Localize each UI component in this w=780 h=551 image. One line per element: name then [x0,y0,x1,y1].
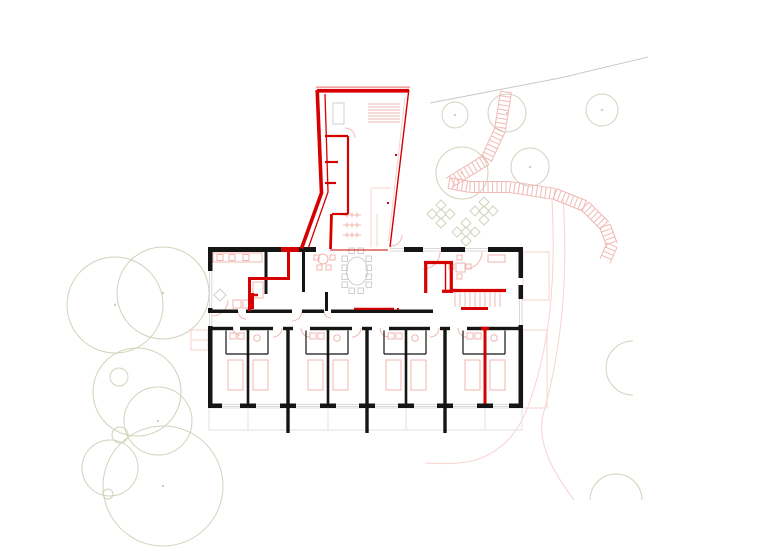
wall [209,327,233,330]
path-rung [603,233,613,237]
drawing-sheet [0,0,780,551]
furniture-symbol [342,256,348,262]
wall [467,327,521,330]
path-edge [553,199,583,211]
path-rung [464,167,470,176]
furniture-symbol [388,333,394,339]
tree-canopy [93,348,181,436]
furniture-symbol [358,248,364,254]
wall [362,327,372,330]
path-rung [597,218,605,226]
door-swing-arc [430,328,439,337]
wing-wall [390,90,409,247]
path-rung [607,243,617,247]
door-swing-arc [212,300,228,316]
path-rung [565,194,569,204]
path-rung [570,196,574,206]
path-rung [496,122,507,124]
furniture-symbol [217,255,223,261]
furniture-symbol [467,333,473,339]
plan-svg [0,0,780,551]
path-rung [509,182,511,193]
furniture-symbol [238,333,244,339]
furniture-symbol [333,360,348,390]
furniture-symbol [488,255,505,262]
furniture-symbol [318,333,324,339]
wing-wall [302,90,322,249]
path-rung [496,118,507,120]
wall [208,404,222,409]
wall [519,285,524,299]
tree-canopy-dot [162,485,164,487]
path-rung [549,188,551,199]
path-rung [545,187,547,198]
tree-canopy-dot [454,114,456,116]
path-rung [498,104,509,106]
door-swing-arc [273,328,282,337]
furniture-symbol [457,255,462,260]
door-swing-arc [233,328,240,335]
door-swing-arc [324,311,331,318]
path-rung [602,255,612,259]
furniture-symbol [228,360,243,390]
tree-canopy-dot [114,304,116,306]
wall-new [387,202,389,204]
path-rung [601,228,611,232]
furniture-symbol [308,360,323,390]
tree-canopy-dot [529,166,531,168]
wall [310,327,352,330]
furniture-symbol [230,333,236,339]
tree-canopy [606,341,633,395]
furniture-symbol [465,360,480,390]
furniture-symbol [349,248,355,254]
path-rung [578,199,582,209]
wall [240,327,273,330]
wall [302,310,324,314]
wall [320,404,336,409]
furniture-symbol [334,335,340,341]
furniture-symbol [333,103,344,124]
wall [208,247,213,271]
furniture-symbol [317,265,322,270]
wall [246,310,292,314]
site-landscape [67,57,648,546]
wall [488,247,523,252]
furniture-symbol [490,360,505,390]
path-rung [574,197,578,207]
furniture-symbol [386,360,401,390]
door-swing-arc [391,235,402,246]
door-swing-arc [292,311,302,321]
furniture-symbol [358,288,364,294]
path-rung [499,100,510,102]
furniture-symbol [366,282,372,288]
path-rung [484,152,494,157]
furniture-symbol [253,360,268,390]
path-rung [486,148,496,153]
tree-canopy-dot [601,109,603,111]
path-rung [491,136,501,141]
tree-canopy [103,489,113,499]
furniture-symbol [396,333,402,339]
wing-wall [331,214,332,249]
furniture-symbol [456,263,465,272]
path-rung [487,144,497,149]
tree-canopy [523,330,547,408]
furniture-symbol [412,335,418,341]
furniture-symbol [475,333,481,339]
wall [519,248,524,278]
wall [404,247,423,252]
furniture-symbol [342,282,348,288]
path-rung [557,191,561,201]
path-rung [531,185,533,196]
furniture-symbol [491,335,497,341]
furniture-symbol [229,255,235,261]
tree-canopy-dot [162,292,164,294]
wall [240,404,256,409]
tree-canopy [590,474,642,500]
wall [398,404,414,409]
wall [509,404,523,409]
diamond-marker [214,289,226,301]
path-rung [540,186,542,197]
wall-new [397,308,399,310]
furniture-symbol [457,274,462,279]
wall [440,327,450,330]
path-rung [448,178,450,189]
wall [477,404,493,409]
furniture-symbol [330,255,335,260]
path-rung [518,183,520,194]
path-rung [501,91,512,93]
furniture-symbol [310,333,316,339]
wall [441,247,465,252]
furniture-symbol [233,300,241,308]
path-rung [591,212,599,220]
tree-canopy [523,252,549,300]
wall [389,327,430,330]
door-swing-arc [465,252,482,269]
path-rung [605,237,615,241]
north-wing [302,87,411,250]
path-rung [466,181,468,192]
furniture-symbol [349,288,355,294]
path-rung [603,251,613,255]
path-rung [472,162,478,171]
wall [283,327,293,330]
wall [208,247,281,252]
door-swing-arc [352,328,361,337]
furniture-symbol [326,265,331,270]
wall [208,326,213,408]
tree-canopy [82,440,138,496]
path-rung [594,215,602,223]
path-rung [498,109,509,111]
furniture-symbol [411,360,426,390]
path-rung [475,160,481,169]
wall [331,310,433,314]
wall-new [395,154,397,156]
path-rung [584,205,592,213]
wall [208,310,238,314]
tree-canopy [110,368,128,386]
path-edge [505,93,511,131]
path-rung [489,140,499,145]
path-rung [514,182,516,193]
path-edge [511,182,556,189]
path-rung [605,247,615,251]
door-swing-arc [238,311,246,319]
furniture-symbol [347,257,368,285]
path-edge [463,165,489,181]
path-rung [536,186,538,197]
furniture-symbol [254,335,260,341]
tree-canopy [430,57,648,103]
furniture-symbol [243,255,249,261]
path-rung [468,165,474,174]
path-rung [500,96,511,98]
wall-new [481,327,489,330]
path-rung [493,132,503,137]
tree-canopy-dot [157,420,159,422]
wall [519,325,524,408]
furniture [213,103,505,390]
furniture-symbol [366,256,372,262]
path-rung [587,208,595,216]
